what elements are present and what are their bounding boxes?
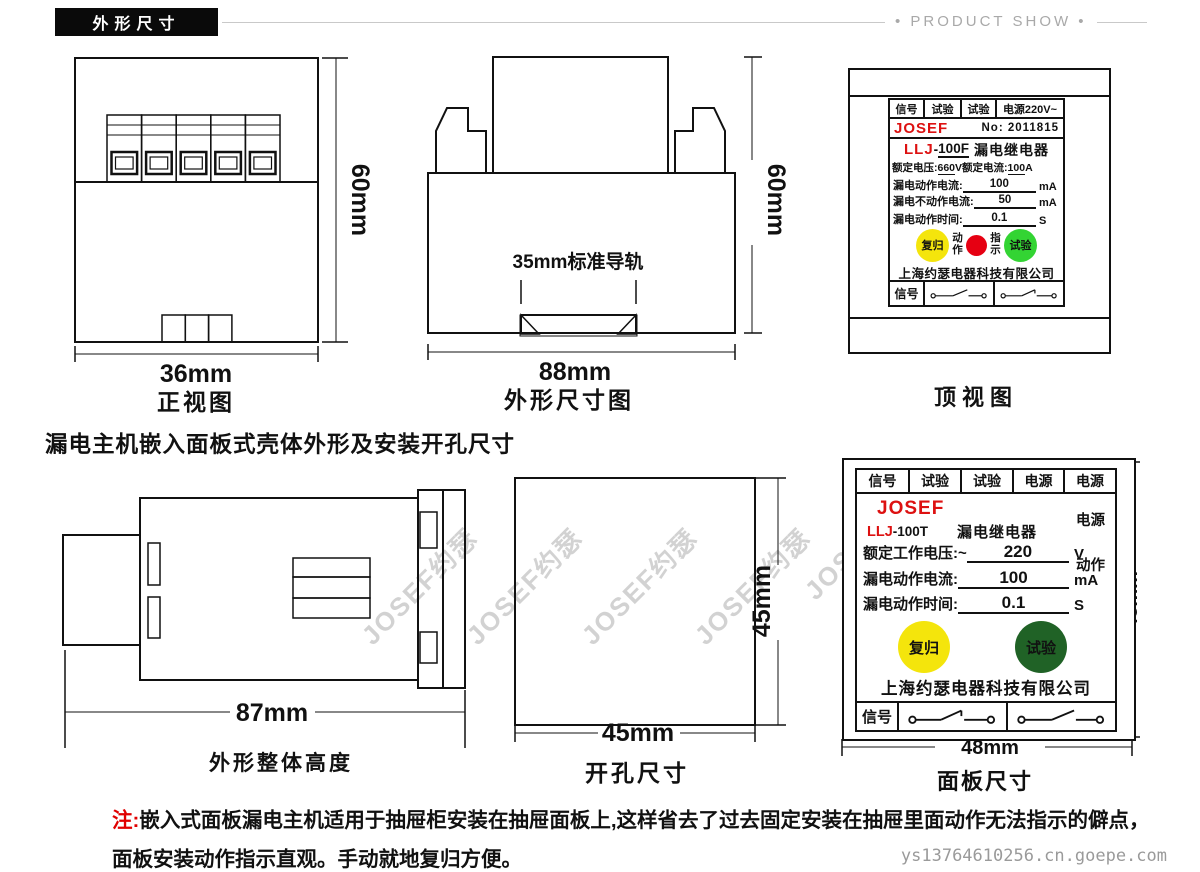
spec-row: 额定工作电压:~ 220 V <box>863 542 1101 563</box>
terminal-footer-row: 信号 <box>857 701 1115 730</box>
front-view-dimensions <box>75 58 348 362</box>
terminal-cell: 电源220V~ <box>997 100 1063 117</box>
spec-row-label: 额定工作电压:~ <box>863 542 967 563</box>
panel-spec-area: JOSEF 电源 LLJ-100T 漏电继电器 动作 额定工作电压:~ 220 … <box>857 494 1115 621</box>
spec2-unit: A <box>1025 162 1033 174</box>
top-view-caption: 顶视图 <box>896 380 1056 412</box>
cutout-caption: 开孔尺寸 <box>585 760 689 786</box>
spec1-label: 额定电压: <box>892 162 938 174</box>
spec-row: 漏电动作时间: 0.1 S <box>863 593 1101 614</box>
model-number: 100F <box>938 141 969 158</box>
panel-face: 信号 试验 试验 电源 电源 JOSEF 电源 LLJ-100T 漏电继电器 动… <box>842 458 1136 741</box>
spec-row: 漏电不动作电流: 50 mA <box>890 193 1063 209</box>
front-view-height-dim: 60mm <box>346 164 374 236</box>
contact-symbol-icon <box>904 705 1000 729</box>
reset-button: 复归 <box>898 621 950 673</box>
seller-url: ys13764610256.cn.goepe.com <box>895 846 1167 866</box>
cutout-width-dim: 45mm <box>602 719 674 747</box>
spec-row-label: 漏电动作时间: <box>893 211 963 227</box>
terminal-header-row: 信号 试验 试验 电源 电源 <box>857 470 1115 494</box>
side-view-width-dim: 88mm <box>539 358 611 386</box>
height-view-caption: 外形整体高度 <box>209 751 353 775</box>
indicate-label: 指示 <box>989 233 1002 256</box>
height-view-drawing: 87mm 外形整体高度 <box>55 480 475 780</box>
product-name: 漏电继电器 <box>974 140 1049 160</box>
note-text1: 嵌入式面板漏电主机适用于抽屉柜安装在抽屉面板上,这样省去了过去固定安装在抽屉里面… <box>139 809 1149 832</box>
contact-symbol-cell <box>995 282 1063 305</box>
front-view-width-dim: 36mm <box>160 360 232 388</box>
spec-row-value: 220 <box>967 543 1069 563</box>
spec-row-value: 0.1 <box>963 212 1036 227</box>
terminal-cell: 试验 <box>962 470 1014 492</box>
note-line1: 注:嵌入式面板漏电主机适用于抽屉柜安装在抽屉面板上,这样省去了过去固定安装在抽屉… <box>112 801 1172 840</box>
spec-row-unit: S <box>1036 215 1060 227</box>
spec-row-label: 漏电不动作电流: <box>893 193 974 209</box>
spec-row-label: 漏电动作电流: <box>863 568 958 589</box>
model-prefix: LLJ <box>904 141 934 158</box>
signal-cell: 信号 <box>890 282 925 305</box>
contact-symbol-icon <box>929 284 989 304</box>
device-edge-line <box>850 95 1109 97</box>
spec-row-label: 漏电动作电流: <box>893 177 963 193</box>
bottom-tabs <box>162 315 232 342</box>
product-spec-page: JOSEF约瑟 JOSEF约瑟 JOSEF约瑟 JOSEF约瑟 JOSEF约瑟 … <box>0 0 1200 872</box>
company-name: 上海约瑟电器科技有限公司 <box>890 263 1063 280</box>
contact-symbol-cell <box>1008 703 1115 730</box>
brand-row: JOSEF No: 2011815 <box>890 119 1063 139</box>
spec1-value: 660 <box>938 162 956 175</box>
height-view-outline <box>63 490 465 688</box>
brand-logo: JOSEF <box>894 120 948 137</box>
reset-button: 复归 <box>916 229 949 262</box>
spec-row: 漏电动作电流: 100 mA <box>863 568 1101 589</box>
spec-row-label: 漏电动作时间: <box>863 593 958 614</box>
embedded-panel-heading: 漏电主机嵌入面板式壳体外形及安装开孔尺寸 <box>45 427 515 459</box>
device-edge-line <box>850 317 1109 319</box>
height-view-width-dim: 87mm <box>236 699 308 727</box>
terminal-cell: 试验 <box>925 100 962 117</box>
action-indicator-lamp <box>966 235 987 256</box>
din-rail-label: 35mm标准导轨 <box>513 250 644 273</box>
spec-row-value: 0.1 <box>958 594 1069 614</box>
spec-row-unit: S <box>1069 597 1101 614</box>
contact-symbol-icon <box>999 284 1059 304</box>
cutout-drawing: 45mm 45mm 开孔尺寸 <box>500 470 810 790</box>
product-name: 漏电继电器 <box>957 521 1037 542</box>
spec-row-unit: mA <box>1069 572 1101 589</box>
serial-label: No: <box>981 122 1003 134</box>
front-view-drawing: 60mm 36mm 正视图 <box>55 45 375 420</box>
spec-row-unit: mA <box>1036 197 1060 209</box>
top-view-label-panel: 信号 试验 试验 电源220V~ JOSEF No: 2011815 LLJ -… <box>888 98 1065 307</box>
terminal-header-row: 信号 试验 试验 电源220V~ <box>890 100 1063 119</box>
terminal-blocks <box>107 115 280 182</box>
note-prefix: 注: <box>112 809 139 832</box>
terminal-cell: 电源 <box>1065 470 1115 492</box>
model-prefix: LLJ <box>867 524 893 540</box>
power-lamp-label: 电源 <box>1076 509 1105 530</box>
cutout-dimensions <box>515 478 786 742</box>
spec-row-value: 50 <box>974 194 1036 209</box>
spec-row: 漏电动作时间: 0.1 S <box>890 209 1063 227</box>
spec-row-value: 100 <box>963 178 1036 193</box>
spec2-label: 额定电流: <box>962 162 1008 174</box>
cutout-square <box>515 478 755 725</box>
spec-row-unit: mA <box>1036 181 1060 193</box>
action-label: 动作 <box>951 233 964 256</box>
spec-row-value: 100 <box>958 569 1069 589</box>
front-view-outline <box>75 58 318 342</box>
side-view-caption: 外形尺寸图 <box>504 387 634 413</box>
rating-spec-row: 额定电压:660V额定电流:100A <box>890 160 1063 175</box>
terminal-footer-row: 信号 <box>890 280 1063 305</box>
terminal-cell: 信号 <box>857 470 910 492</box>
terminal-cell: 信号 <box>890 100 925 117</box>
section-title-tag: 外形尺寸 <box>55 8 218 36</box>
top-view-device: 信号 试验 试验 电源220V~ JOSEF No: 2011815 LLJ -… <box>848 68 1111 354</box>
spec1-unit: V <box>955 162 962 174</box>
spec-row: 漏电动作电流: 100 mA <box>890 175 1063 193</box>
test-button: 试验 <box>1015 621 1067 673</box>
company-name: 上海约瑟电器科技有限公司 <box>857 673 1115 701</box>
product-show-label: • PRODUCT SHOW • <box>885 13 1097 30</box>
contact-symbol-cell <box>925 282 995 305</box>
terminal-cell: 试验 <box>962 100 997 117</box>
signal-cell: 信号 <box>857 703 899 730</box>
terminal-cell: 试验 <box>910 470 962 492</box>
front-view-caption: 正视图 <box>157 389 235 415</box>
test-button: 试验 <box>1004 229 1037 262</box>
spec-row-unit: V <box>1069 546 1101 563</box>
contact-symbol-cell <box>899 703 1008 730</box>
indicator-button-row: 复归 动作 指示 试验 <box>890 227 1063 263</box>
panel-label: 信号 试验 试验 电源 电源 JOSEF 电源 LLJ-100T 漏电继电器 动… <box>855 468 1117 732</box>
serial-value: 2011815 <box>1008 122 1059 134</box>
brand-logo: JOSEF <box>877 498 944 520</box>
side-view-drawing: 35mm标准导轨 60mm 88mm 外形尺寸图 <box>415 45 790 420</box>
side-view-height-dim: 60mm <box>762 164 790 236</box>
contact-symbol-icon <box>1013 705 1109 729</box>
model-row: LLJ-100T <box>867 524 928 540</box>
button-row: 复归 试验 <box>857 621 1115 673</box>
terminal-cell: 电源 <box>1014 470 1065 492</box>
panel-caption: 面板尺寸 <box>910 764 1060 796</box>
side-view-outline <box>428 57 735 336</box>
serial-number: No: 2011815 <box>981 122 1059 134</box>
model-row: LLJ - 100F 漏电继电器 <box>890 139 1063 160</box>
model-number: -100T <box>893 524 928 539</box>
cutout-height-dim: 45mm <box>748 565 776 637</box>
spec2-value: 100 <box>1008 162 1026 175</box>
